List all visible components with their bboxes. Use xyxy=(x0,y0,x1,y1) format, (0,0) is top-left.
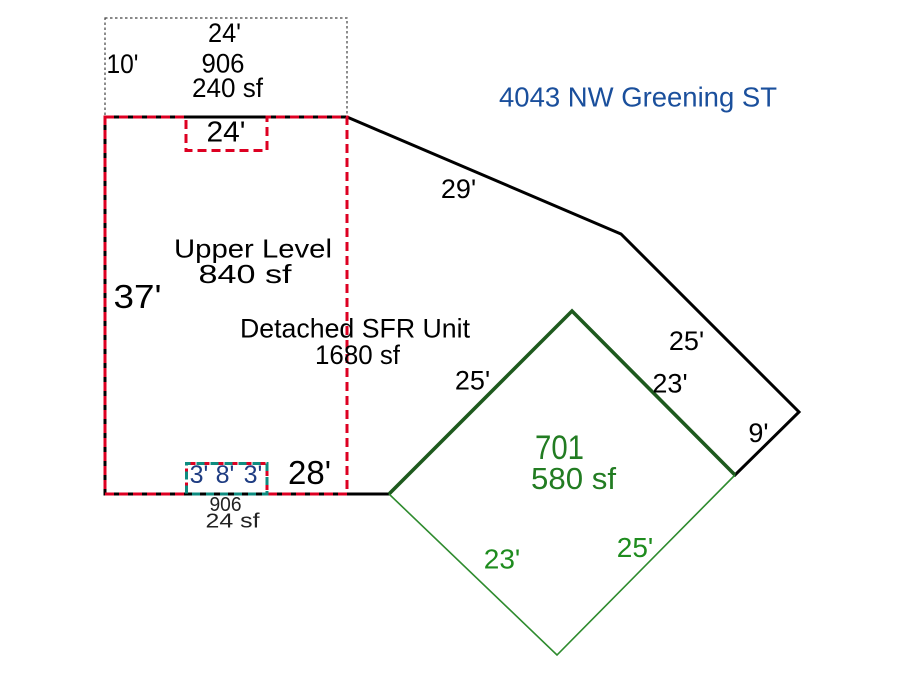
svg-text:24': 24' xyxy=(207,117,246,149)
svg-text:25': 25' xyxy=(669,326,704,356)
svg-text:25': 25' xyxy=(617,532,654,563)
svg-text:3': 3' xyxy=(190,461,209,489)
svg-text:24 sf: 24 sf xyxy=(206,511,261,533)
svg-text:29': 29' xyxy=(441,174,476,204)
svg-text:240 sf: 240 sf xyxy=(192,73,263,103)
svg-text:23': 23' xyxy=(652,369,687,399)
svg-text:24': 24' xyxy=(208,18,241,48)
svg-text:3': 3' xyxy=(244,461,263,489)
svg-text:1680 sf: 1680 sf xyxy=(315,340,400,370)
svg-text:28': 28' xyxy=(288,454,331,491)
svg-text:37': 37' xyxy=(114,278,162,315)
svg-text:4043 NW Greening ST: 4043 NW Greening ST xyxy=(499,82,777,113)
svg-text:580 sf: 580 sf xyxy=(531,461,616,496)
svg-text:25': 25' xyxy=(455,366,490,396)
svg-text:23': 23' xyxy=(484,544,521,575)
svg-text:Detached SFR Unit: Detached SFR Unit xyxy=(240,314,470,344)
svg-text:9': 9' xyxy=(748,418,768,448)
svg-text:10': 10' xyxy=(107,49,139,79)
svg-text:8': 8' xyxy=(216,461,235,489)
svg-text:840 sf: 840 sf xyxy=(199,259,293,289)
